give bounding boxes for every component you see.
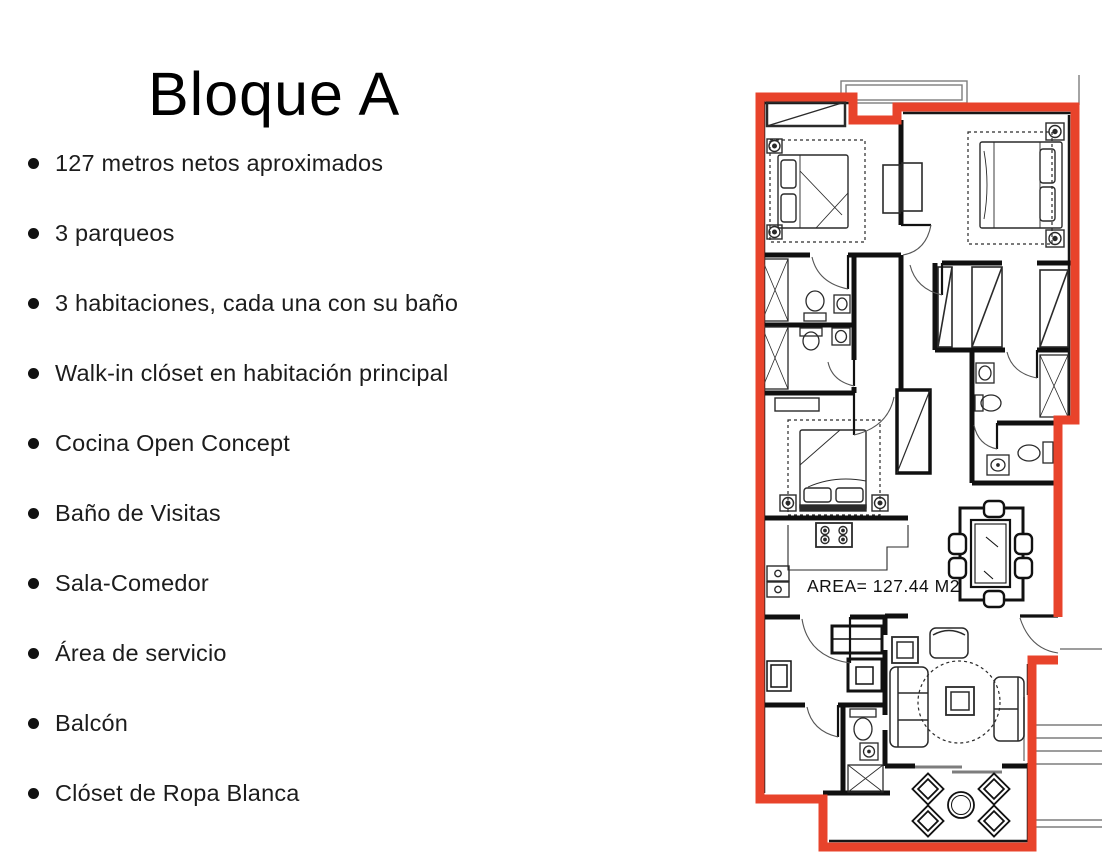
service-bathroom bbox=[848, 709, 883, 792]
laundry-unit bbox=[848, 659, 882, 691]
feature-item: 127 metros netos aproximados bbox=[28, 147, 458, 180]
bed bbox=[800, 430, 866, 511]
toilet bbox=[800, 328, 822, 350]
balcony-chair bbox=[912, 773, 943, 804]
sink bbox=[832, 328, 850, 345]
balcony-chair bbox=[912, 805, 943, 836]
closet bbox=[762, 327, 788, 389]
page-title: Bloque A bbox=[148, 59, 400, 129]
feature-item: Clóset de Ropa Blanca bbox=[28, 777, 458, 810]
nightstand-lamp bbox=[780, 495, 796, 511]
balcony bbox=[912, 767, 1009, 837]
stove bbox=[816, 523, 852, 547]
brochure-page: Bloque A 127 metros netos aproximados3 p… bbox=[0, 0, 1102, 855]
feature-item: Cocina Open Concept bbox=[28, 427, 458, 460]
toilet bbox=[975, 395, 1001, 411]
sink bbox=[834, 295, 850, 313]
master-bathroom bbox=[975, 355, 1068, 417]
features-list: 127 metros netos aproximados3 parqueos3 … bbox=[28, 147, 458, 847]
bathroom-1 bbox=[762, 259, 850, 321]
floorplan-svg: AREA= 127.44 M2 bbox=[690, 75, 1102, 855]
bathroom-2 bbox=[762, 327, 850, 389]
feature-item: 3 habitaciones, cada una con su baño bbox=[28, 287, 458, 320]
toilet bbox=[804, 291, 826, 321]
nightstand-lamp bbox=[1046, 123, 1064, 140]
living-room bbox=[890, 628, 1024, 747]
feature-item: 3 parqueos bbox=[28, 217, 458, 250]
sofa bbox=[890, 667, 928, 747]
kitchen-sink bbox=[767, 566, 789, 597]
feature-item: Walk-in clóset en habitación principal bbox=[28, 357, 458, 390]
loveseat bbox=[994, 677, 1024, 741]
feature-item: Área de servicio bbox=[28, 637, 458, 670]
balcony-chair bbox=[978, 805, 1009, 836]
hall-closet bbox=[897, 390, 930, 473]
armchair bbox=[930, 628, 968, 658]
wall-lining bbox=[764, 101, 1071, 841]
bench bbox=[775, 398, 819, 411]
sink bbox=[987, 455, 1009, 475]
dining-chair bbox=[984, 591, 1004, 607]
dresser bbox=[902, 163, 922, 211]
balcony-table bbox=[948, 792, 974, 818]
dining-chair bbox=[1015, 558, 1032, 578]
dresser bbox=[883, 165, 900, 213]
feature-item: Sala-Comedor bbox=[28, 567, 458, 600]
nightstand-lamp bbox=[767, 139, 782, 153]
shower bbox=[1040, 355, 1068, 417]
nightstand-lamp bbox=[872, 495, 888, 511]
area-label: AREA= 127.44 M2 bbox=[807, 576, 960, 596]
service-area bbox=[767, 626, 882, 691]
bed bbox=[778, 155, 848, 228]
sink bbox=[976, 363, 994, 383]
toilet bbox=[1018, 442, 1053, 463]
dining-chair bbox=[984, 501, 1004, 517]
nightstand-lamp bbox=[767, 225, 782, 239]
floorplan: AREA= 127.44 M2 bbox=[690, 75, 1102, 855]
chair bbox=[767, 661, 791, 691]
tv-unit bbox=[892, 637, 918, 663]
dining-chair bbox=[949, 534, 966, 554]
sink bbox=[860, 743, 878, 760]
walk-in-closet bbox=[938, 267, 1068, 347]
bed bbox=[980, 142, 1062, 228]
bedroom-2-master bbox=[902, 123, 1064, 247]
coffee-table bbox=[946, 687, 974, 715]
sliding-door bbox=[915, 767, 1002, 772]
closet bbox=[762, 259, 788, 321]
bedroom-3 bbox=[775, 398, 888, 515]
closet-top bbox=[767, 102, 845, 126]
shower bbox=[848, 765, 883, 792]
balcony-chair bbox=[978, 773, 1009, 804]
dining-chair bbox=[949, 558, 966, 578]
feature-item: Balcón bbox=[28, 707, 458, 740]
dining-chair bbox=[1015, 534, 1032, 554]
dining bbox=[949, 501, 1032, 607]
feature-item: Baño de Visitas bbox=[28, 497, 458, 530]
toilet bbox=[850, 709, 876, 740]
